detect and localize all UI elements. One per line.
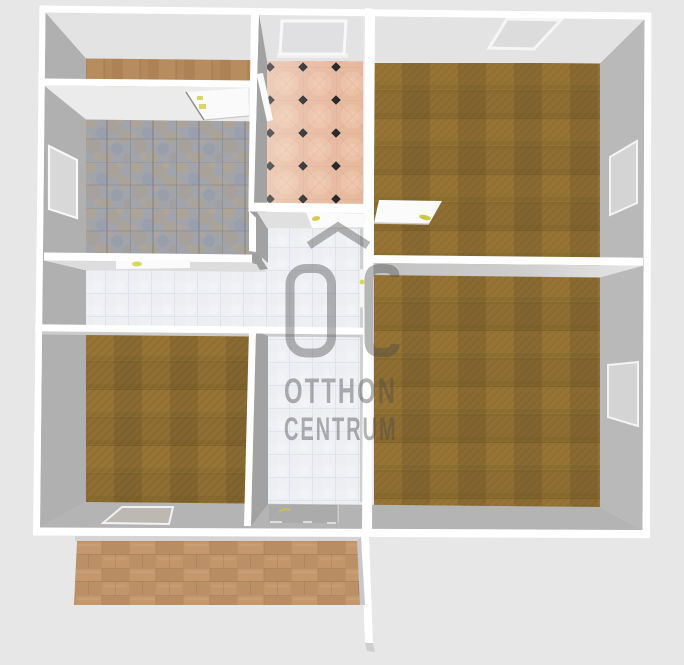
svg-text:OTTHON: OTTHON xyxy=(284,372,397,411)
svg-text:CENTRUM: CENTRUM xyxy=(284,411,398,447)
